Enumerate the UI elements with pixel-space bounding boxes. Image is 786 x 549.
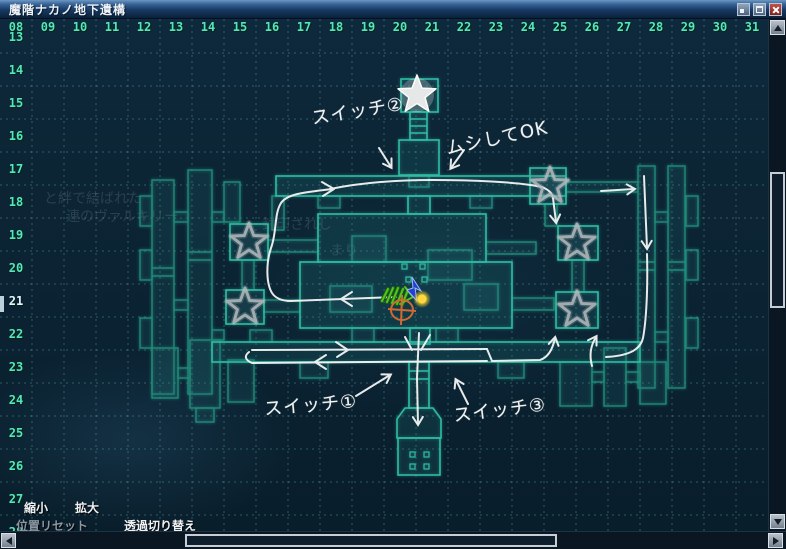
zoom-out-button[interactable]: 縮小 <box>24 499 48 516</box>
horizontal-scroll-thumb[interactable] <box>185 534 557 547</box>
vertical-scroll-thumb[interactable] <box>770 172 785 308</box>
right-arrow-icon <box>773 537 779 545</box>
map-window: と絆で結ばれた連のヴァルキリー封印されしまり <box>0 0 786 549</box>
title-bar: 魔階ナカノ地下遺構 <box>0 0 786 19</box>
up-arrow-icon <box>774 25 782 31</box>
close-button[interactable] <box>769 3 782 16</box>
toolbar: 縮小 拡大 位置リセット 透過切り替え <box>0 0 786 549</box>
close-icon <box>770 4 781 15</box>
window-title: 魔階ナカノ地下遺構 <box>9 1 126 18</box>
horizontal-scrollbar[interactable] <box>0 531 786 549</box>
minimize-button[interactable] <box>737 3 750 16</box>
scroll-up-button[interactable] <box>770 20 785 35</box>
maximize-button[interactable] <box>753 3 766 16</box>
vertical-scrollbar[interactable] <box>768 19 786 531</box>
scroll-down-button[interactable] <box>770 514 785 529</box>
scroll-right-button[interactable] <box>768 533 783 548</box>
down-arrow-icon <box>774 519 782 525</box>
window-controls <box>737 3 782 16</box>
minimize-icon <box>740 9 744 13</box>
left-arrow-icon <box>6 537 12 545</box>
scroll-left-button[interactable] <box>1 533 16 548</box>
zoom-in-button[interactable]: 拡大 <box>75 499 99 516</box>
maximize-icon <box>756 6 763 13</box>
